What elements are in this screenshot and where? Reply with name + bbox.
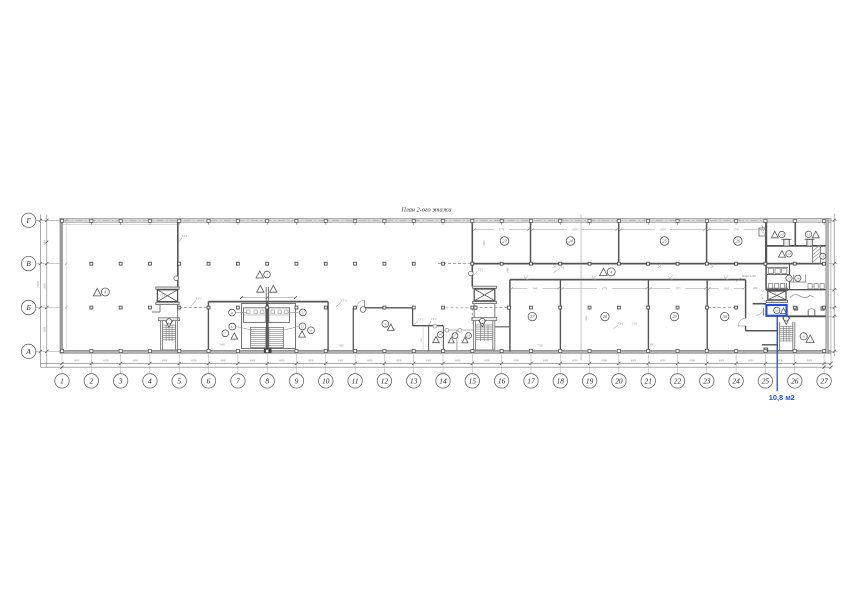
svg-text:6000: 6000 [543, 360, 549, 363]
svg-text:22: 22 [674, 376, 682, 385]
svg-text:10: 10 [322, 376, 330, 385]
svg-text:18: 18 [796, 276, 800, 280]
svg-text:6000: 6000 [514, 360, 520, 363]
svg-text:16: 16 [498, 376, 506, 385]
svg-text:СТ-1: СТ-1 [559, 267, 565, 270]
svg-text:8: 8 [231, 311, 233, 315]
svg-text:2: 2 [89, 376, 93, 385]
svg-text:8: 8 [310, 329, 312, 333]
svg-text:11540: 11540 [571, 229, 578, 232]
svg-text:СТ-1: СТ-1 [341, 300, 347, 303]
svg-text:12: 12 [301, 311, 305, 315]
svg-text:24: 24 [568, 239, 573, 244]
svg-text:6000: 6000 [367, 360, 373, 363]
svg-text:20: 20 [615, 376, 623, 385]
svg-text:17: 17 [787, 276, 791, 280]
svg-text:7: 7 [236, 376, 240, 385]
svg-text:11: 11 [231, 325, 234, 329]
svg-text:6000: 6000 [484, 360, 490, 363]
svg-text:15: 15 [821, 254, 825, 258]
svg-text:19: 19 [586, 376, 594, 385]
svg-text:4: 4 [610, 270, 612, 274]
svg-text:6000: 6000 [103, 360, 109, 363]
svg-text:7500: 7500 [537, 345, 543, 348]
svg-text:СТ-1: СТ-1 [632, 322, 638, 325]
svg-text:СТ-1: СТ-1 [160, 295, 166, 298]
svg-text:24: 24 [732, 376, 740, 385]
svg-text:9: 9 [295, 376, 299, 385]
svg-text:3000: 3000 [44, 326, 47, 332]
svg-text:6000: 6000 [279, 360, 285, 363]
svg-text:18: 18 [557, 376, 565, 385]
svg-text:7575: 7575 [675, 287, 681, 290]
svg-text:9: 9 [384, 322, 386, 326]
svg-text:10,8 м2: 10,8 м2 [769, 393, 795, 402]
svg-text:6000: 6000 [250, 360, 256, 363]
svg-text:12: 12 [301, 325, 305, 329]
svg-text:СТ-1: СТ-1 [418, 319, 424, 322]
svg-text:14: 14 [439, 376, 447, 385]
svg-text:5745: 5745 [734, 229, 740, 232]
svg-text:26: 26 [791, 376, 799, 385]
svg-text:3842: 3842 [724, 287, 730, 290]
svg-text:8: 8 [265, 376, 269, 385]
svg-text:11540: 11540 [659, 229, 666, 232]
svg-text:13500: 13500 [37, 281, 40, 288]
svg-text:6000: 6000 [74, 360, 80, 363]
svg-text:6000: 6000 [660, 360, 666, 363]
svg-text:3: 3 [118, 376, 123, 385]
svg-text:6000: 6000 [309, 360, 315, 363]
svg-text:5445: 5445 [585, 315, 588, 321]
svg-text:8770: 8770 [602, 287, 608, 290]
svg-text:Разрез 5-2М: Разрез 5-2М [741, 275, 756, 278]
svg-text:СТ-1: СТ-1 [478, 268, 484, 271]
svg-text:6000: 6000 [719, 360, 725, 363]
svg-text:6000: 6000 [807, 360, 813, 363]
svg-text:6000: 6000 [162, 360, 168, 363]
svg-text:6000: 6000 [572, 360, 578, 363]
svg-text:1: 1 [60, 376, 64, 385]
svg-text:6000: 6000 [455, 360, 461, 363]
svg-text:6000: 6000 [338, 360, 344, 363]
svg-text:2115: 2115 [420, 337, 423, 342]
svg-text:СТ-1: СТ-1 [196, 298, 202, 301]
svg-text:6000: 6000 [191, 360, 197, 363]
svg-text:6000: 6000 [426, 360, 432, 363]
svg-text:6000: 6000 [631, 360, 637, 363]
svg-text:Г: Г [26, 217, 32, 225]
svg-text:3000: 3000 [44, 283, 47, 289]
svg-text:5: 5 [177, 376, 181, 385]
svg-text:29: 29 [775, 309, 779, 313]
svg-text:26: 26 [736, 239, 741, 244]
svg-text:14: 14 [787, 252, 791, 256]
svg-text:План 2-ого этажа: План 2-ого этажа [400, 207, 451, 214]
svg-text:6000: 6000 [397, 360, 403, 363]
svg-text:10: 10 [780, 233, 784, 237]
svg-text:25: 25 [662, 239, 667, 244]
svg-text:5770: 5770 [499, 229, 505, 232]
svg-text:В: В [26, 260, 31, 268]
svg-text:8: 8 [803, 335, 805, 339]
svg-text:4: 4 [148, 376, 152, 385]
svg-text:5: 5 [266, 273, 268, 277]
svg-text:12: 12 [381, 376, 389, 385]
svg-text:6000: 6000 [690, 360, 696, 363]
svg-text:1482: 1482 [753, 287, 759, 290]
svg-text:21: 21 [645, 376, 652, 385]
svg-text:6: 6 [207, 376, 211, 385]
svg-text:5480: 5480 [338, 345, 344, 348]
svg-text:А: А [25, 348, 31, 356]
svg-text:6000: 6000 [602, 360, 608, 363]
svg-text:5448: 5448 [532, 287, 538, 290]
svg-text:25: 25 [762, 376, 770, 385]
svg-text:13: 13 [410, 376, 418, 385]
svg-text:8045: 8045 [483, 240, 486, 246]
svg-text:27: 27 [820, 376, 828, 385]
svg-text:6000: 6000 [133, 360, 139, 363]
svg-text:6460: 6460 [507, 267, 510, 273]
svg-text:15: 15 [469, 376, 477, 385]
svg-text:СТ-1: СТ-1 [618, 322, 624, 325]
svg-text:Б: Б [25, 304, 31, 312]
svg-text:6000: 6000 [748, 360, 754, 363]
svg-text:23: 23 [502, 239, 507, 244]
svg-text:17: 17 [527, 376, 535, 385]
svg-text:5480: 5480 [219, 344, 225, 347]
svg-text:7: 7 [224, 332, 226, 336]
svg-text:23: 23 [703, 376, 711, 385]
svg-text:13: 13 [807, 233, 811, 237]
svg-text:6000: 6000 [221, 360, 227, 363]
svg-text:6000: 6000 [778, 360, 784, 363]
svg-text:11: 11 [352, 376, 359, 385]
svg-text:СТ-1: СТ-1 [182, 235, 188, 238]
svg-text:4: 4 [104, 290, 106, 294]
svg-text:СТ-1: СТ-1 [431, 318, 437, 321]
